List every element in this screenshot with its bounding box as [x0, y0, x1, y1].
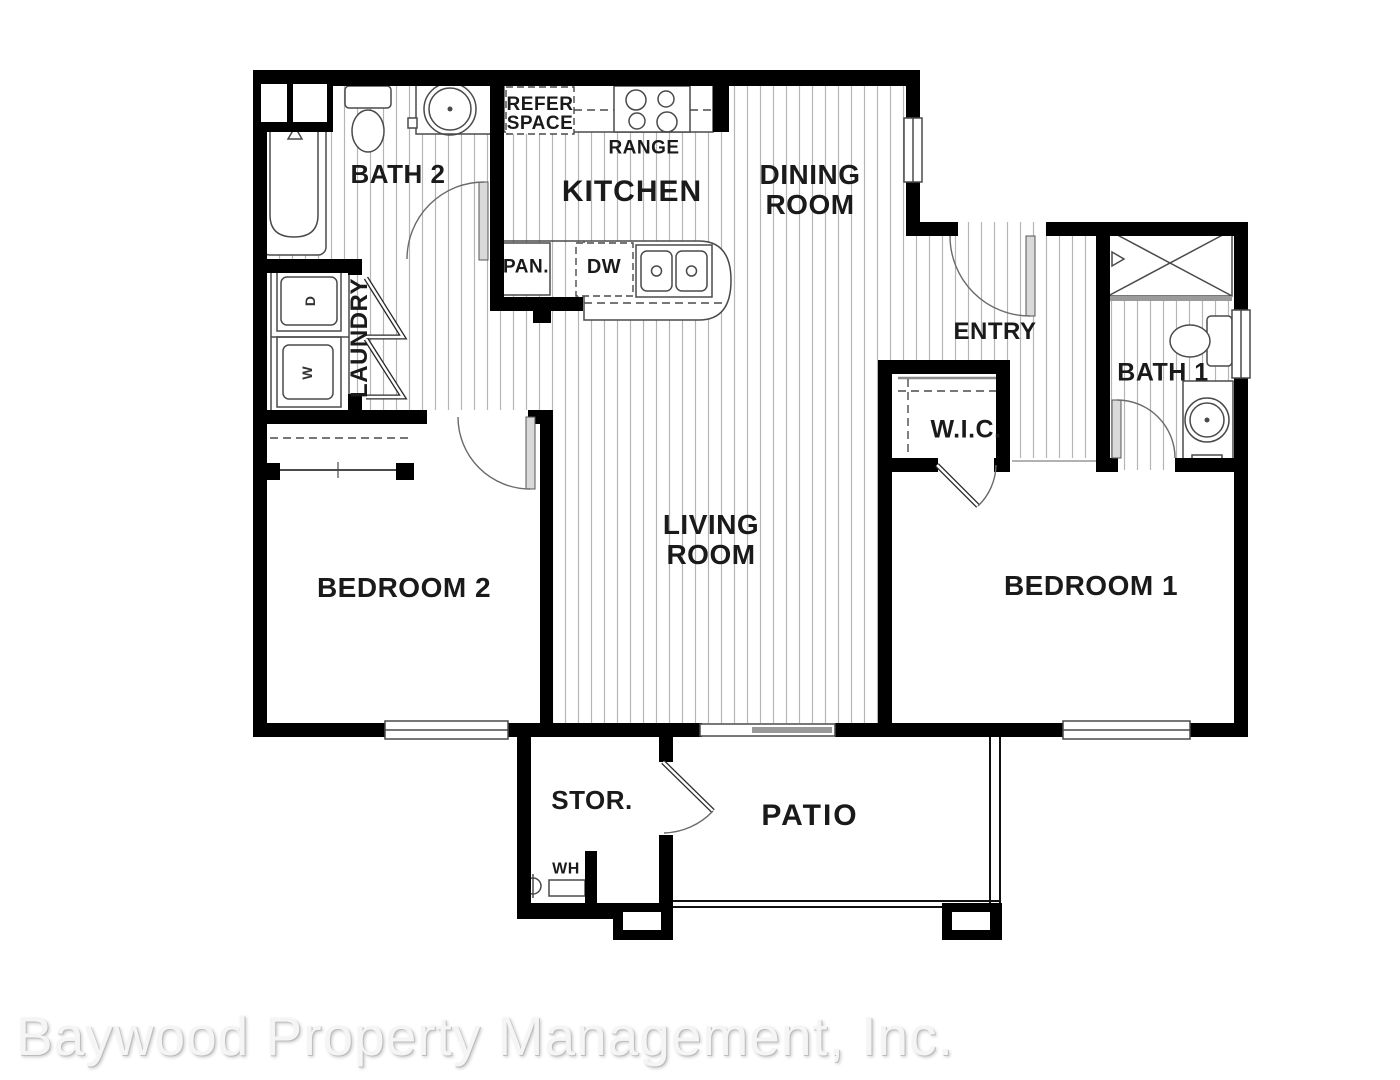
- room-label-bath1: BATH 1: [1117, 360, 1208, 387]
- room-label-entry: ENTRY: [954, 319, 1037, 345]
- fixture-label-range: RANGE: [608, 139, 679, 160]
- room-label-patio: PATIO: [761, 800, 858, 832]
- pillar-insets: [623, 912, 990, 930]
- window-bath1: [1232, 310, 1250, 378]
- range-burners: [614, 86, 690, 132]
- vanity-sink-bath1: [1183, 381, 1233, 463]
- patio-sliding-door: [700, 724, 835, 736]
- room-label-bedroom1: BEDROOM 1: [1004, 571, 1178, 601]
- bathtub: [262, 125, 326, 255]
- door-storage: [663, 762, 713, 833]
- dryer-letter: D: [302, 296, 318, 306]
- bedroom2-closet: [270, 438, 410, 478]
- room-label-storage: STOR.: [551, 786, 632, 814]
- vanity-sink-bath2: [408, 83, 498, 135]
- room-label-kitchen: KITCHEN: [562, 176, 702, 208]
- watermark-text: Baywood Property Management, Inc.: [16, 1004, 954, 1068]
- washer-dryer: D W: [271, 265, 349, 411]
- floor-plan-canvas: D W: [0, 0, 1400, 1080]
- kitchen-sink: [636, 245, 712, 297]
- room-label-wic: W.I.C.: [930, 417, 1001, 444]
- window-dining: [904, 118, 922, 182]
- fixture-label-pantry: PAN.: [503, 258, 549, 279]
- fixture-label-refer-space: REFER SPACE: [507, 95, 574, 133]
- room-label-living: LIVING ROOM: [663, 510, 759, 570]
- wic-closet: [892, 366, 1004, 458]
- shower-bath1: [1108, 230, 1232, 301]
- door-bedroom2: [458, 417, 535, 489]
- window-bedroom1: [1063, 721, 1190, 739]
- fixture-label-dishwasher: DW: [587, 257, 621, 279]
- bath2-niche: [261, 84, 327, 122]
- room-label-dining: DINING ROOM: [760, 160, 861, 220]
- door-wic: [937, 465, 996, 506]
- window-bedroom2: [385, 721, 508, 739]
- room-label-bath2: BATH 2: [351, 160, 446, 188]
- room-label-bedroom2: BEDROOM 2: [317, 573, 491, 603]
- washer-letter: W: [299, 366, 315, 380]
- room-label-laundry: LAUNDRY: [347, 278, 373, 398]
- fixture-label-water-heater: WH: [552, 860, 580, 877]
